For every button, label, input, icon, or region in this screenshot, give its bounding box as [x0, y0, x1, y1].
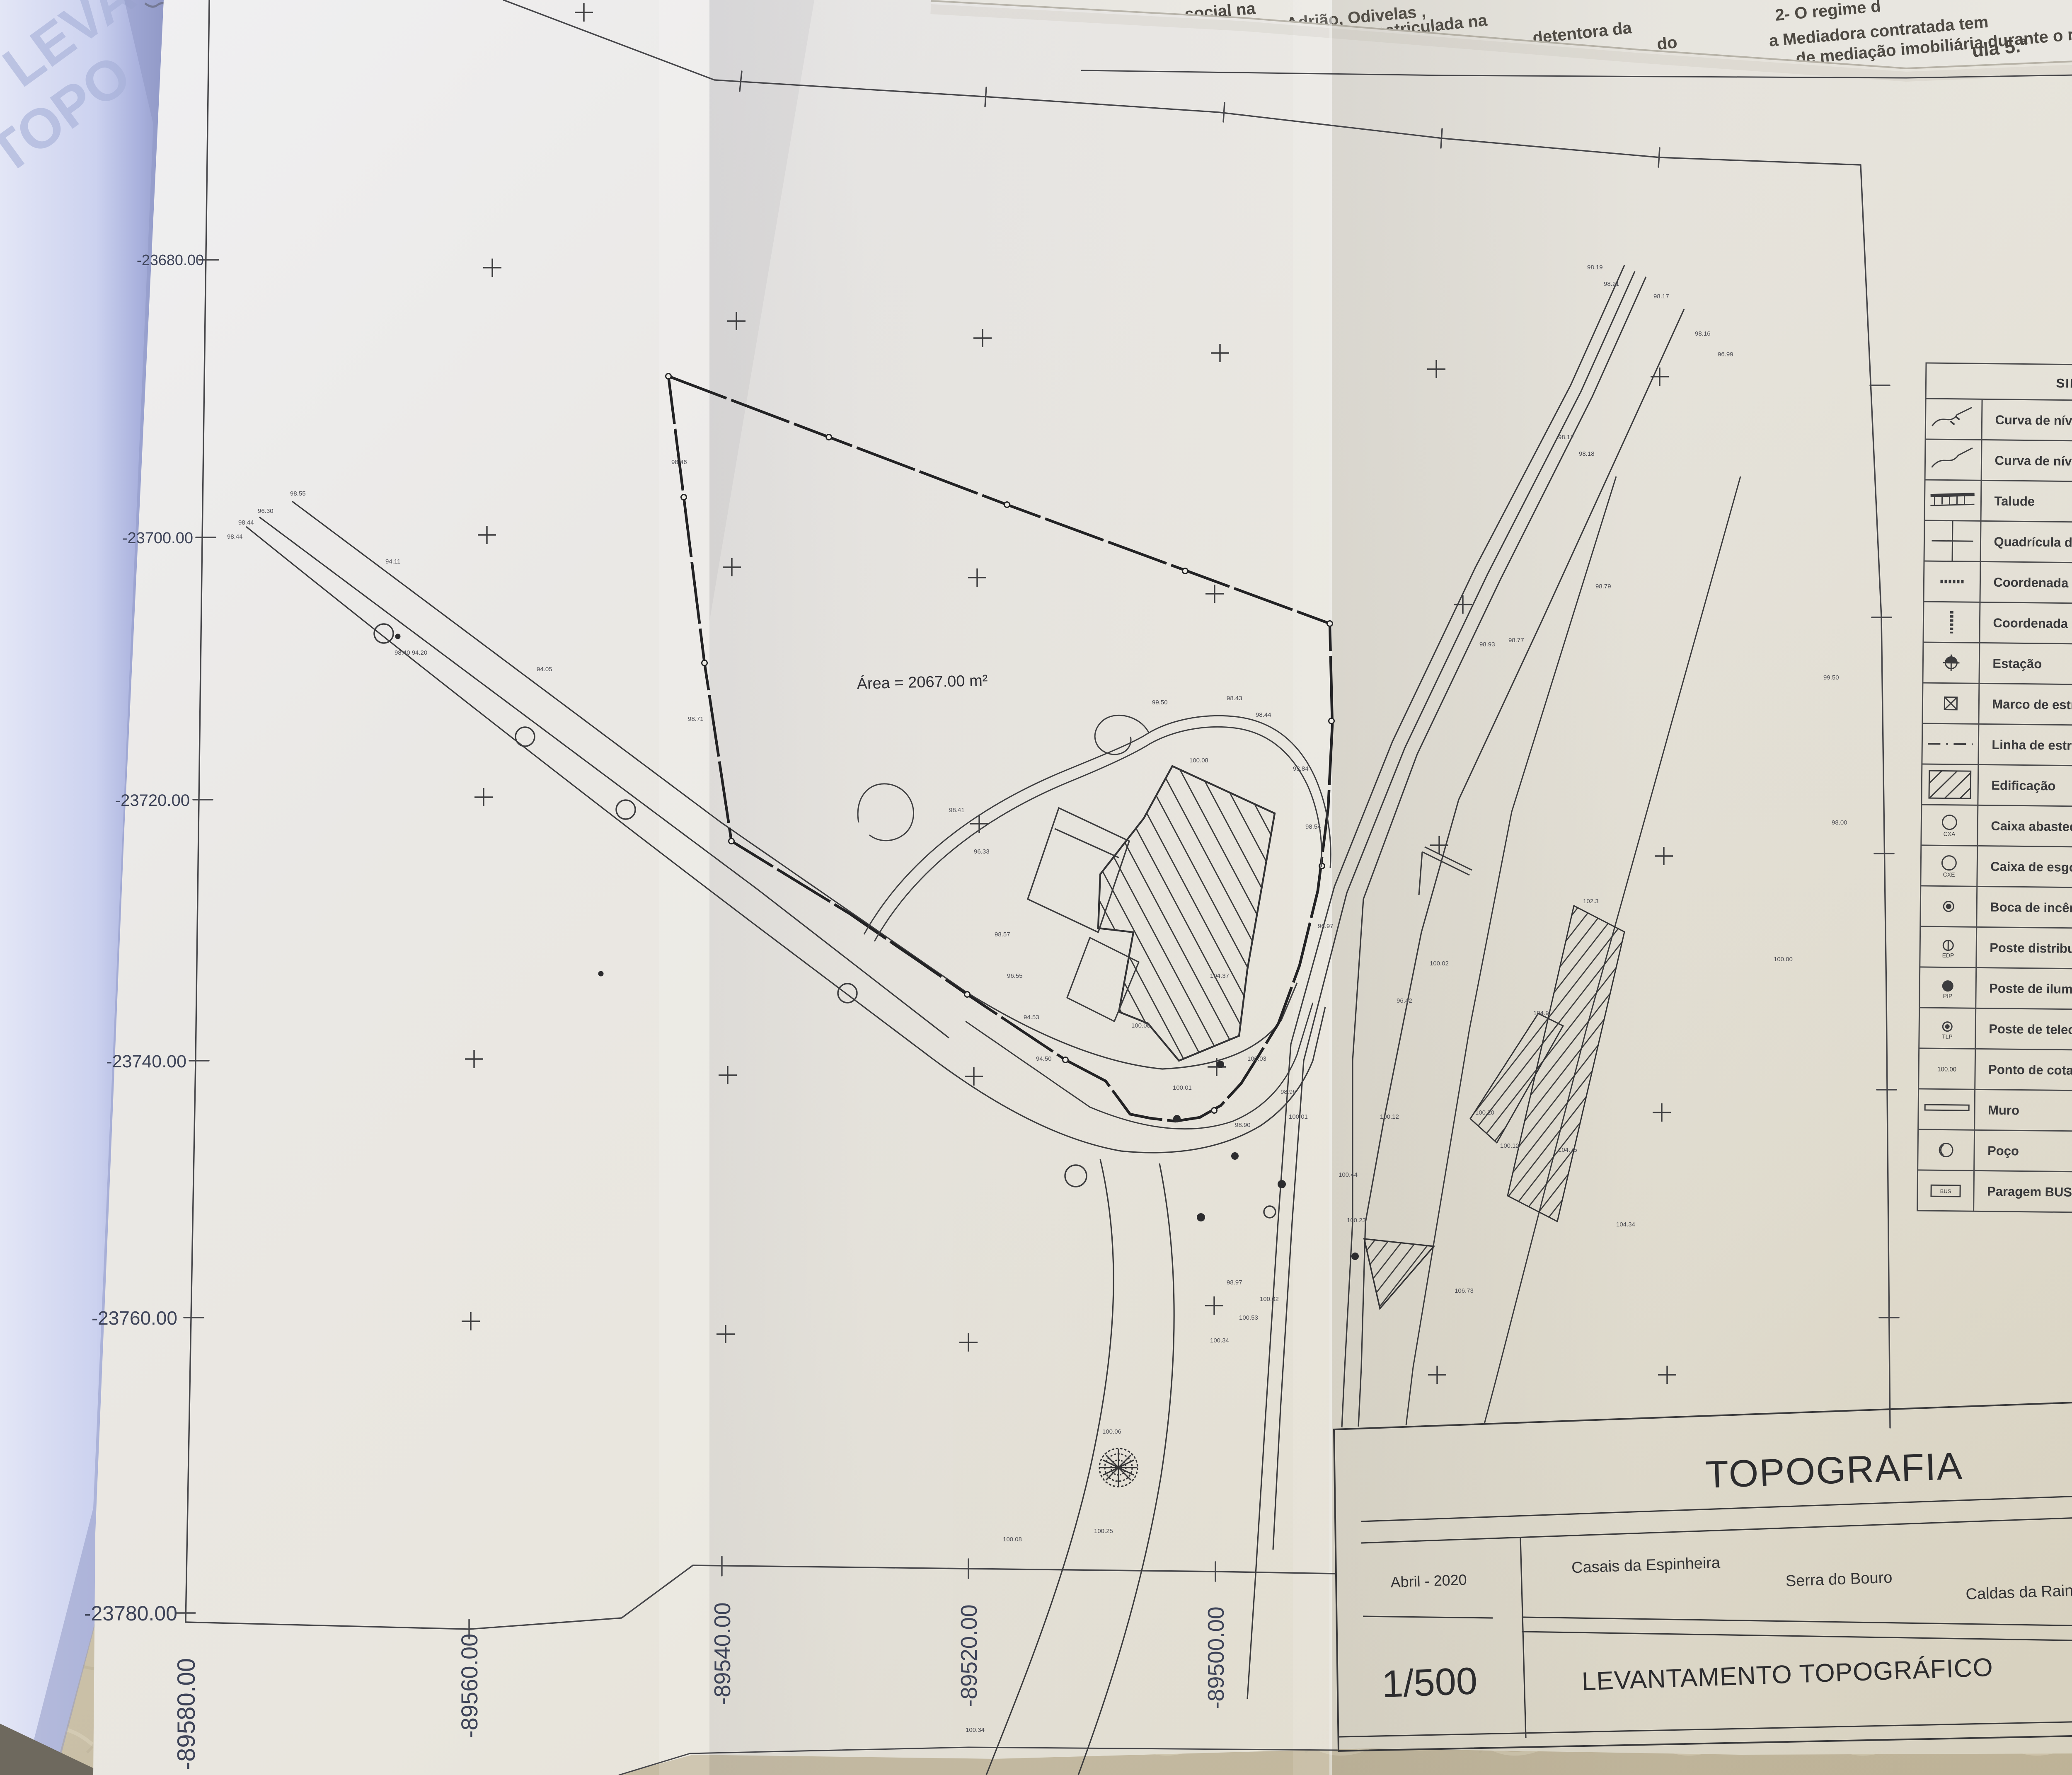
- svg-text:100.23: 100.23: [1347, 1217, 1366, 1224]
- svg-text:104.9: 104.9: [1533, 1010, 1549, 1017]
- svg-text:100.01: 100.01: [1289, 1113, 1308, 1120]
- svg-text:Talude: Talude: [1994, 494, 2035, 509]
- svg-text:98.77: 98.77: [1508, 637, 1524, 644]
- svg-text:98.97: 98.97: [1227, 1279, 1242, 1286]
- svg-text:100.34: 100.34: [966, 1727, 985, 1734]
- svg-text:Linha de estrema: Linha de estrema: [1992, 738, 2072, 753]
- svg-text:106.73: 106.73: [1455, 1287, 1474, 1294]
- svg-text:-23680.00: -23680.00: [137, 251, 204, 268]
- svg-text:96.55: 96.55: [1007, 972, 1023, 979]
- svg-text:100.00: 100.00: [1774, 956, 1793, 963]
- svg-text:-89540.00: -89540.00: [709, 1602, 735, 1705]
- svg-text:98.19: 98.19: [1587, 264, 1603, 271]
- svg-text:CXA: CXA: [1944, 830, 1956, 837]
- svg-text:98.43: 98.43: [1227, 695, 1242, 702]
- svg-text:104.75: 104.75: [1558, 1146, 1577, 1154]
- svg-text:-23720.00: -23720.00: [115, 791, 190, 810]
- svg-text:98.40 94.20: 98.40 94.20: [395, 649, 427, 656]
- svg-text:Coordenada p: Coordenada p: [1993, 575, 2072, 590]
- svg-text:100.53: 100.53: [1239, 1314, 1258, 1321]
- svg-text:100.12: 100.12: [1380, 1113, 1399, 1120]
- svg-text:100.00: 100.00: [1937, 1066, 1956, 1073]
- svg-text:98.44: 98.44: [1256, 711, 1271, 718]
- svg-text:TLP: TLP: [1942, 1033, 1953, 1040]
- svg-text:98.21: 98.21: [1604, 281, 1619, 288]
- svg-text:98.96: 98.96: [1280, 1088, 1296, 1095]
- svg-text:98.44: 98.44: [227, 533, 243, 540]
- svg-text:98.44: 98.44: [238, 519, 254, 526]
- svg-text:EDP: EDP: [1942, 952, 1954, 958]
- svg-text:104.34: 104.34: [1616, 1221, 1635, 1228]
- svg-text:98.17: 98.17: [1653, 293, 1669, 300]
- svg-text:Coordenada m: Coordenada m: [1993, 616, 2072, 631]
- svg-text:98.18: 98.18: [1579, 450, 1595, 457]
- svg-text:Marco de estrema de propriedad: Marco de estrema de propriedade: [1992, 697, 2072, 713]
- svg-text:-89580.00: -89580.00: [172, 1658, 200, 1770]
- svg-text:100.02: 100.02: [1430, 960, 1449, 967]
- svg-text:98.71: 98.71: [688, 716, 704, 723]
- svg-text:96.42: 96.42: [1397, 997, 1412, 1004]
- svg-text:96.99: 96.99: [1718, 351, 1733, 358]
- svg-text:98.16: 98.16: [1695, 330, 1711, 337]
- svg-text:Poste de iluminação: Poste de iluminação: [1989, 981, 2072, 997]
- svg-text:99.50: 99.50: [1823, 674, 1839, 681]
- svg-text:-89520.00: -89520.00: [956, 1604, 982, 1707]
- svg-text:100.44: 100.44: [1339, 1171, 1358, 1178]
- svg-text:98.41: 98.41: [949, 807, 965, 814]
- svg-text:Serra do Bouro: Serra do Bouro: [1785, 1569, 1893, 1590]
- svg-text:98.46: 98.46: [671, 459, 687, 466]
- svg-text:98.57: 98.57: [995, 931, 1010, 938]
- svg-text:100.34: 100.34: [1210, 1337, 1229, 1344]
- svg-text:104.37: 104.37: [1210, 972, 1229, 979]
- svg-text:SIMBOLOGIA: SIMBOLOGIA: [2056, 376, 2072, 391]
- svg-text:94.53: 94.53: [1024, 1014, 1039, 1021]
- svg-text:98.55: 98.55: [290, 490, 306, 497]
- svg-text:Curva de nível secundária: Curva de nível secundária: [1995, 453, 2072, 469]
- svg-text:100.08: 100.08: [1131, 1022, 1150, 1029]
- svg-text:Edificação: Edificação: [1991, 778, 2055, 793]
- svg-text:-89500.00: -89500.00: [1203, 1606, 1229, 1709]
- svg-text:94.50: 94.50: [1036, 1055, 1052, 1062]
- svg-text:100.08: 100.08: [1003, 1536, 1022, 1543]
- svg-text:-23780.00: -23780.00: [84, 1602, 177, 1625]
- svg-text:100.12: 100.12: [1500, 1142, 1519, 1149]
- svg-text:Poste distribuição EDP: Poste distribuição EDP: [1990, 941, 2072, 957]
- svg-text:96.33: 96.33: [974, 848, 990, 855]
- svg-text:102.3: 102.3: [1583, 898, 1599, 905]
- svg-text:100.06: 100.06: [1102, 1428, 1121, 1435]
- svg-text:Boca de incêndio: Boca de incêndio: [1990, 900, 2072, 916]
- svg-text:BUS: BUS: [1940, 1188, 1951, 1194]
- svg-text:Poço: Poço: [1987, 1144, 2019, 1158]
- svg-text:98.93: 98.93: [1479, 641, 1495, 648]
- svg-text:94.05: 94.05: [537, 666, 552, 673]
- svg-text:96.97: 96.97: [1318, 923, 1334, 930]
- svg-text:94.11: 94.11: [385, 558, 400, 565]
- svg-text:Paragem BUS: Paragem BUS: [1987, 1184, 2072, 1199]
- svg-text:100.08: 100.08: [1189, 757, 1208, 764]
- svg-text:100.20: 100.20: [1475, 1109, 1494, 1116]
- svg-text:96.30: 96.30: [258, 508, 274, 515]
- svg-text:98.00: 98.00: [1832, 819, 1847, 826]
- svg-text:TOPOGRAFIA: TOPOGRAFIA: [1705, 1445, 1964, 1496]
- svg-text:Poste de telecomunicações: Poste de telecomunicações: [1989, 1022, 2072, 1038]
- svg-text:Quadrícula de coordenação: Quadrícula de coordenação: [1994, 534, 2072, 551]
- svg-text:Área = 2067.00 m²: Área = 2067.00 m²: [857, 672, 988, 693]
- svg-text:Abril - 2020: Abril - 2020: [1390, 1571, 1467, 1591]
- svg-text:98.12: 98.12: [1558, 434, 1574, 441]
- svg-text:Ponto de cota: Ponto de cota: [1988, 1062, 2072, 1078]
- svg-text:98.90: 98.90: [1235, 1122, 1251, 1129]
- svg-text:Estação: Estação: [1992, 656, 2042, 671]
- svg-text:PIP: PIP: [1943, 993, 1953, 999]
- svg-text:-23760.00: -23760.00: [92, 1307, 177, 1329]
- svg-text:-23700.00: -23700.00: [122, 530, 193, 547]
- svg-text:Caixa de esgoto doméstico: Caixa de esgoto doméstico: [1990, 859, 2072, 875]
- svg-text:99.50: 99.50: [1152, 699, 1168, 706]
- svg-text:98.54: 98.54: [1305, 823, 1321, 830]
- svg-text:Muro: Muro: [1988, 1103, 2019, 1118]
- svg-text:100.25: 100.25: [1094, 1528, 1113, 1535]
- svg-text:1/500: 1/500: [1381, 1660, 1478, 1705]
- svg-text:100.02: 100.02: [1260, 1296, 1279, 1303]
- svg-text:-23740.00: -23740.00: [106, 1052, 186, 1071]
- svg-text:Caixa abastecimento de água: Caixa abastecimento de água: [1991, 819, 2072, 835]
- svg-text:-89560.00: -89560.00: [456, 1634, 482, 1738]
- svg-text:100.03: 100.03: [1247, 1055, 1266, 1062]
- svg-text:100.01: 100.01: [1173, 1084, 1192, 1091]
- svg-text:CXE: CXE: [1943, 871, 1955, 878]
- svg-text:98.84: 98.84: [1293, 765, 1309, 772]
- svg-text:Curva de nível mestra com cota: Curva de nível mestra com cota: [1995, 413, 2072, 429]
- svg-text:98.79: 98.79: [1595, 583, 1611, 590]
